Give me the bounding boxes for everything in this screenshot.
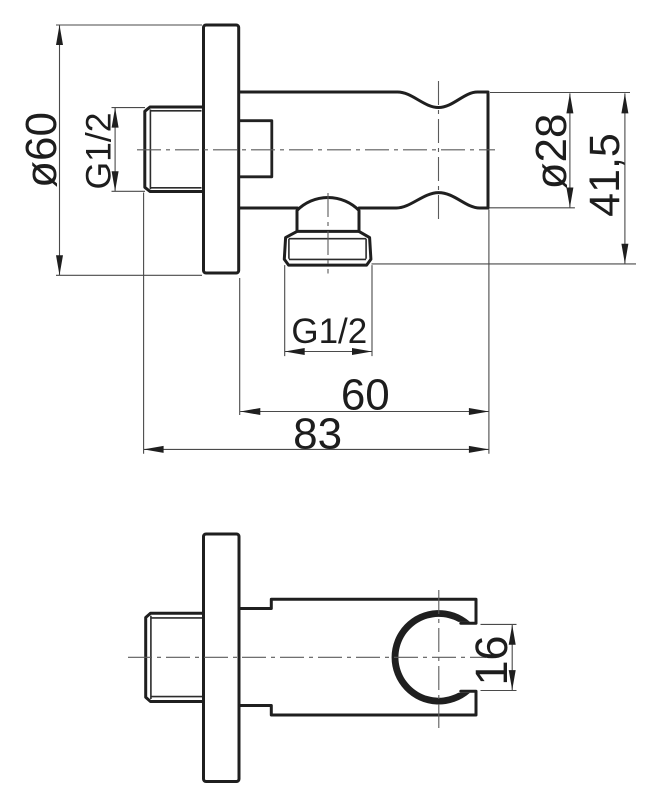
svg-text:G1/2: G1/2 (78, 113, 118, 190)
svg-text:ø28: ø28 (527, 114, 576, 190)
svg-text:60: 60 (341, 371, 390, 420)
svg-text:83: 83 (293, 410, 342, 459)
svg-text:41,5: 41,5 (581, 133, 629, 217)
svg-text:ø60: ø60 (17, 112, 66, 188)
svg-text:16: 16 (466, 635, 517, 685)
svg-text:G1/2: G1/2 (291, 312, 367, 351)
